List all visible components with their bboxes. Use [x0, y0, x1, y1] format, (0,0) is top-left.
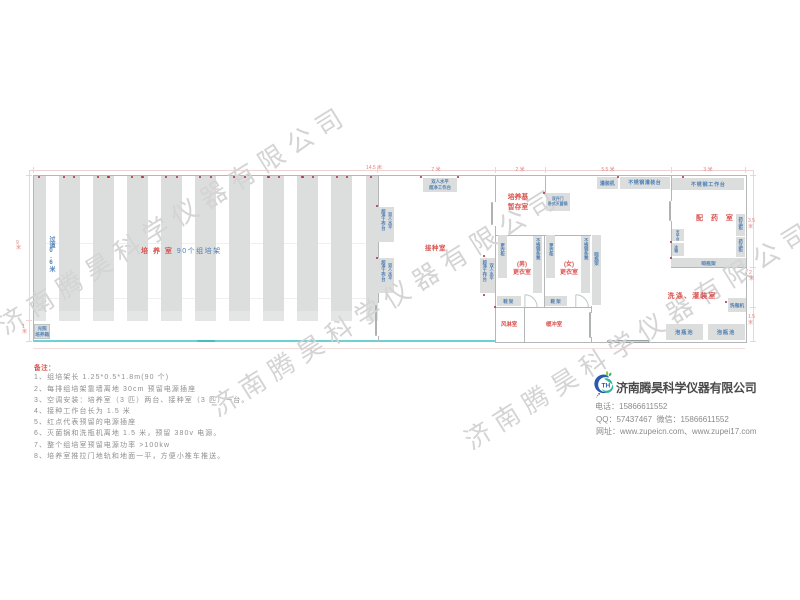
svg-text:TH: TH — [602, 383, 611, 390]
